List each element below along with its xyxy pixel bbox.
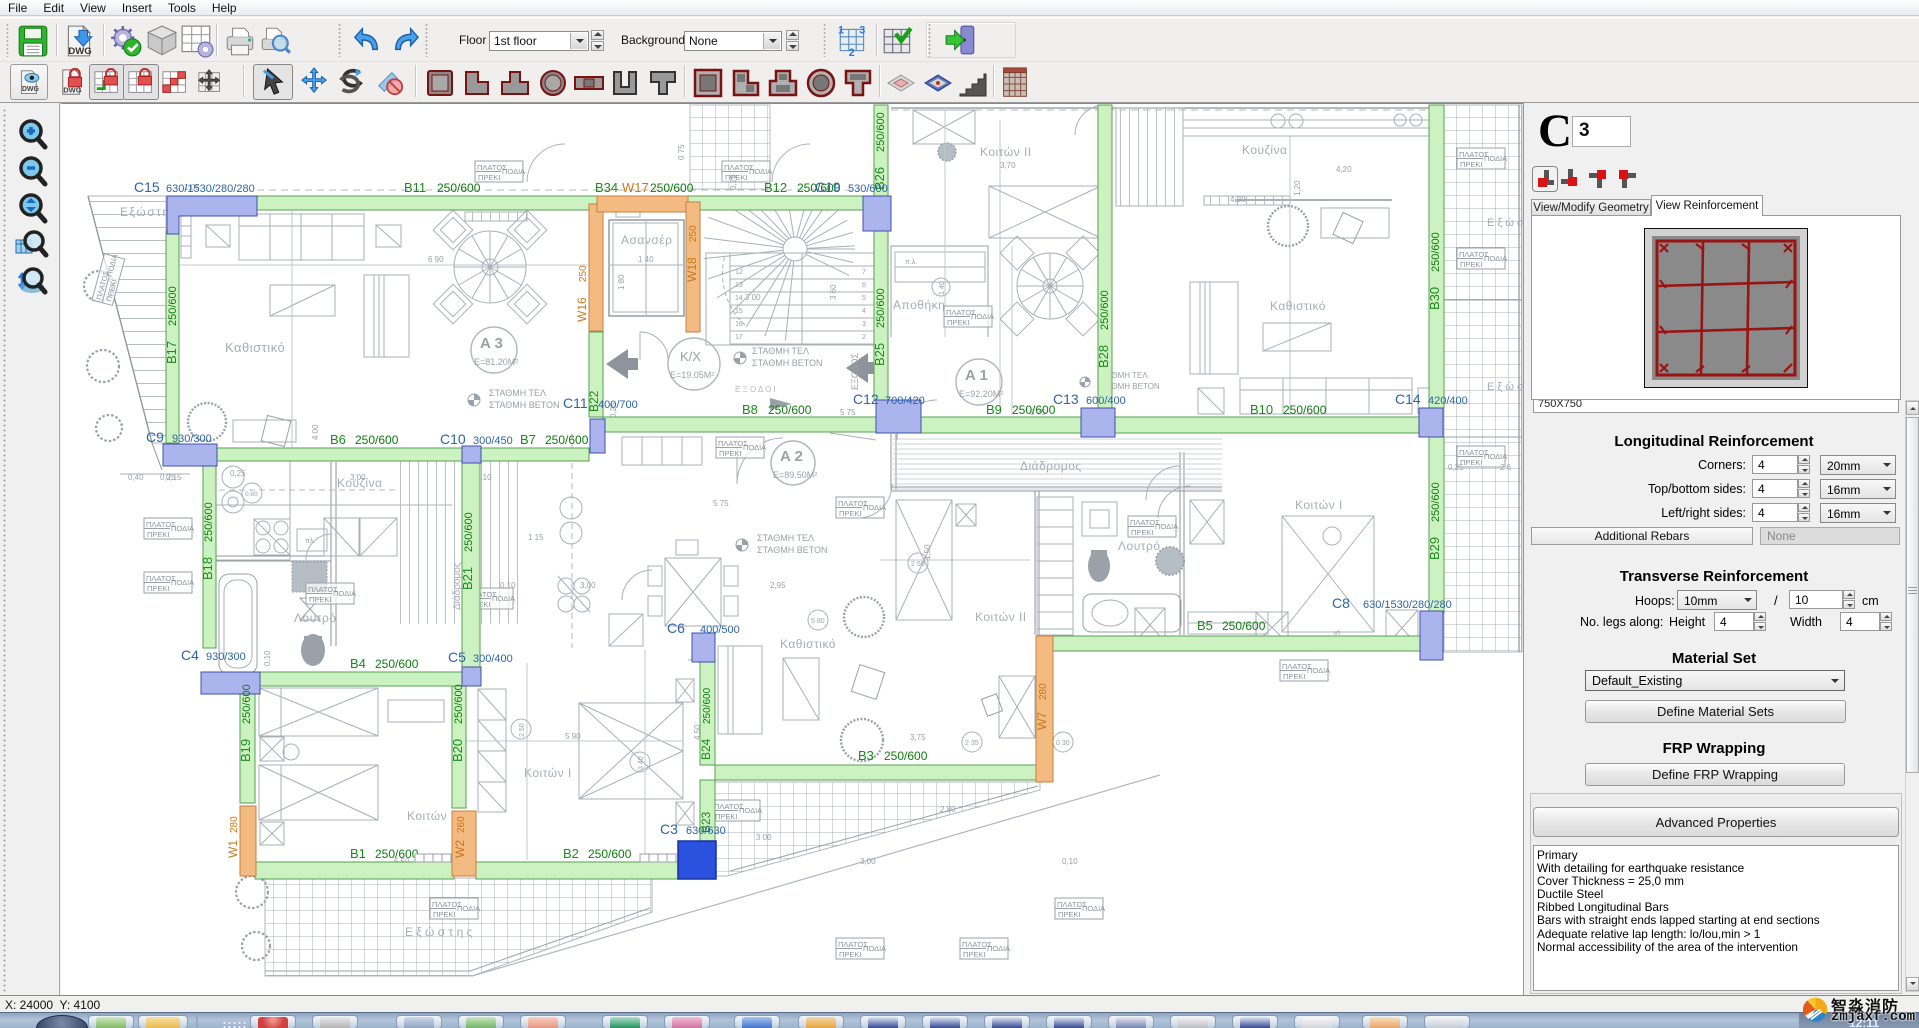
svg-text:C15: C15 xyxy=(134,179,160,195)
svg-text:ΠΡΕΚΙ: ΠΡΕΚΙ xyxy=(147,584,170,593)
svg-text:700/420: 700/420 xyxy=(885,395,925,407)
svg-text:C4: C4 xyxy=(181,647,199,663)
svg-text:B1: B1 xyxy=(350,846,366,861)
svg-text:Κοιτών ΙΙ: Κοιτών ΙΙ xyxy=(407,809,459,823)
svg-text:C9: C9 xyxy=(146,429,164,445)
svg-text:250: 250 xyxy=(578,265,589,282)
svg-text:1 40: 1 40 xyxy=(939,281,946,295)
svg-text:Καθιστικό: Καθιστικό xyxy=(225,340,285,355)
svg-text:3 40: 3 40 xyxy=(638,756,645,770)
svg-text:B2: B2 xyxy=(563,846,579,861)
svg-text:2,95: 2,95 xyxy=(770,581,786,590)
svg-text:B11: B11 xyxy=(404,180,426,195)
svg-text:630/1530/280/280: 630/1530/280/280 xyxy=(166,183,255,195)
svg-text:930/300: 930/300 xyxy=(206,651,246,663)
svg-text:3,75: 3,75 xyxy=(910,733,926,742)
svg-text:250/600: 250/600 xyxy=(884,749,928,763)
svg-text:ΠΟΔΙΑ: ΠΟΔΙΑ xyxy=(492,594,515,603)
svg-text:ΠΡΕΚΙ: ΠΡΕΚΙ xyxy=(478,173,501,182)
svg-text:0,10: 0,10 xyxy=(500,581,516,590)
svg-text:400/500: 400/500 xyxy=(700,624,740,636)
svg-text:B29: B29 xyxy=(1427,537,1442,560)
svg-text:ΠΟΔΙΑ: ΠΟΔΙΑ xyxy=(971,312,994,321)
svg-text:250/600: 250/600 xyxy=(241,684,253,724)
svg-text:C19: C19 xyxy=(815,179,841,195)
svg-text:1,50: 1,50 xyxy=(923,544,932,560)
svg-text:DWG: DWG xyxy=(68,46,91,57)
svg-text:B17: B17 xyxy=(164,341,179,364)
svg-text:300/450: 300/450 xyxy=(473,435,513,447)
svg-text:B20: B20 xyxy=(450,739,465,762)
svg-text:B18: B18 xyxy=(200,557,215,580)
svg-text:ΠΟΔΙΑ: ΠΟΔΙΑ xyxy=(1082,904,1105,913)
svg-text:0.80: 0.80 xyxy=(245,491,258,498)
svg-text:B12: B12 xyxy=(764,180,787,195)
svg-text:ΠΡΕΚΙ: ΠΡΕΚΙ xyxy=(719,449,742,458)
svg-text:250/600: 250/600 xyxy=(768,403,812,417)
svg-text:B24: B24 xyxy=(699,738,713,760)
svg-text:250/600: 250/600 xyxy=(167,286,179,326)
svg-text:5: 5 xyxy=(862,295,866,302)
svg-text:1 15: 1 15 xyxy=(528,533,544,542)
svg-text:6: 6 xyxy=(862,282,866,289)
svg-text:C5: C5 xyxy=(448,649,466,665)
svg-text:Ε ξ ώ σ τ η ς: Ε ξ ώ σ τ η ς xyxy=(405,925,473,939)
svg-text:B9: B9 xyxy=(986,402,1002,417)
svg-text:ΠΟΔΙΑ: ΠΟΔΙΑ xyxy=(502,167,525,176)
svg-text:3 00: 3 00 xyxy=(756,833,772,842)
svg-text:250/600: 250/600 xyxy=(650,181,694,195)
svg-text:B19: B19 xyxy=(238,739,253,762)
svg-text:250/600: 250/600 xyxy=(1430,232,1442,272)
svg-text:250/600: 250/600 xyxy=(375,657,419,671)
svg-text:Ασανσέρ: Ασανσέρ xyxy=(621,233,672,247)
svg-text:ΠΟΔΙΑ: ΠΟΔΙΑ xyxy=(987,944,1010,953)
svg-text:ΠΟΔΙΑ: ΠΟΔΙΑ xyxy=(743,443,766,452)
svg-text:A 2: A 2 xyxy=(780,448,803,465)
svg-text:ΠΟΔΙΑ: ΠΟΔΙΑ xyxy=(1484,154,1507,163)
svg-text:0,10: 0,10 xyxy=(1062,857,1078,866)
svg-text:1 40: 1 40 xyxy=(638,255,654,264)
svg-text:0,25: 0,25 xyxy=(729,174,738,190)
svg-text:ΣΤΑΘΜΗ ΒΕΤΟΝ: ΣΤΑΘΜΗ ΒΕΤΟΝ xyxy=(489,400,560,410)
svg-text:0,25: 0,25 xyxy=(230,469,246,478)
svg-text:250/600: 250/600 xyxy=(355,433,399,447)
svg-text:600/400: 600/400 xyxy=(1086,395,1126,407)
svg-text:3 00: 3 00 xyxy=(745,293,761,302)
svg-text:Ε Ξ Ο Δ Ο Ι: Ε Ξ Ο Δ Ο Ι xyxy=(735,385,776,394)
svg-text:ΠΟΔΙΑ: ΠΟΔΙΑ xyxy=(749,167,772,176)
svg-text:B8: B8 xyxy=(742,402,758,417)
svg-text:260: 260 xyxy=(456,816,467,833)
svg-text:17: 17 xyxy=(735,334,743,341)
svg-text:ΠΡΕΚΙ: ΠΡΕΚΙ xyxy=(963,950,986,959)
svg-text:6 90: 6 90 xyxy=(428,255,444,264)
svg-text:W16: W16 xyxy=(575,297,589,322)
svg-text:E=92.20M²: E=92.20M² xyxy=(959,389,1003,399)
svg-text:C12: C12 xyxy=(853,391,879,407)
svg-text:B4: B4 xyxy=(350,656,366,671)
svg-text:420/400: 420/400 xyxy=(1428,395,1468,407)
svg-text:A 3: A 3 xyxy=(480,335,503,352)
svg-text:3 60: 3 60 xyxy=(829,284,838,300)
svg-text:5 80: 5 80 xyxy=(811,618,825,625)
svg-text:B10: B10 xyxy=(1250,402,1273,417)
svg-text:5 75: 5 75 xyxy=(713,499,729,508)
svg-text:2 50: 2 50 xyxy=(519,723,526,737)
svg-text:W17: W17 xyxy=(622,180,649,195)
svg-text:250/600: 250/600 xyxy=(1099,290,1111,330)
svg-text:B28: B28 xyxy=(1096,345,1111,368)
svg-text:3,00: 3,00 xyxy=(350,473,366,482)
svg-text:3,70: 3,70 xyxy=(1000,161,1016,170)
svg-text:250/600: 250/600 xyxy=(1283,403,1327,417)
svg-text:16: 16 xyxy=(735,321,743,328)
svg-text:250/600: 250/600 xyxy=(875,112,887,152)
svg-text:2 50: 2 50 xyxy=(911,561,925,568)
svg-text:250/600: 250/600 xyxy=(1012,403,1056,417)
svg-text:15: 15 xyxy=(735,308,743,315)
svg-text:ΠΡΕΚΙ: ΠΡΕΚΙ xyxy=(1131,528,1154,537)
svg-text:π.λ.: π.λ. xyxy=(905,259,917,266)
svg-text:W2: W2 xyxy=(453,840,467,858)
svg-text:ΠΟΔΙΑ: ΠΟΔΙΑ xyxy=(1484,254,1507,263)
svg-text:ΠΡΕΚΙ: ΠΡΕΚΙ xyxy=(839,950,862,959)
svg-text:ΠΟΔΙΑ: ΠΟΔΙΑ xyxy=(1484,452,1507,461)
svg-text:Αποθήκη: Αποθήκη xyxy=(893,298,945,312)
svg-text:Λουτρό: Λουτρό xyxy=(1118,539,1161,553)
svg-text:C14: C14 xyxy=(1395,391,1421,407)
svg-text:ΠΡΕΚΙ: ΠΡΕΚΙ xyxy=(839,509,862,518)
svg-text:B3: B3 xyxy=(858,748,874,763)
svg-text:A 1: A 1 xyxy=(965,367,988,384)
svg-text:14: 14 xyxy=(735,295,743,302)
svg-text:B7: B7 xyxy=(520,432,536,447)
svg-text:2,80: 2,80 xyxy=(940,805,956,814)
svg-text:ΣΤΑΘΜΗ ΒΕΤΟΝ: ΣΤΑΘΜΗ ΒΕΤΟΝ xyxy=(752,358,823,368)
svg-text:ΠΡΕΚΙ: ΠΡΕΚΙ xyxy=(147,530,170,539)
svg-text:Λουτρό: Λουτρό xyxy=(294,611,337,625)
svg-text:7: 7 xyxy=(862,269,866,276)
svg-text:ΣΤΑΘΜΗ ΤΕΛ: ΣΤΑΘΜΗ ΤΕΛ xyxy=(489,388,546,398)
svg-text:250/600: 250/600 xyxy=(453,684,465,724)
svg-text:C8: C8 xyxy=(1332,595,1350,611)
svg-text:280: 280 xyxy=(229,816,240,833)
svg-text:250/600: 250/600 xyxy=(463,512,475,552)
svg-text:ΣΤΑΘΜΗ ΤΕΛ: ΣΤΑΘΜΗ ΤΕΛ xyxy=(757,533,814,543)
svg-text:250/600: 250/600 xyxy=(1222,619,1266,633)
svg-text:ΠΟΔΙΑ: ΠΟΔΙΑ xyxy=(739,806,762,815)
svg-text:250/600: 250/600 xyxy=(437,181,481,195)
svg-text:ΠΡΕΚΙ: ΠΡΕΚΙ xyxy=(1058,910,1081,919)
svg-text:Καθιστικό: Καθιστικό xyxy=(1270,299,1326,313)
svg-text:400/700: 400/700 xyxy=(598,399,638,411)
svg-text:3,00: 3,00 xyxy=(860,857,876,866)
svg-text:C13: C13 xyxy=(1053,391,1079,407)
svg-text:C11: C11 xyxy=(563,395,588,411)
svg-text:E=19.05M²: E=19.05M² xyxy=(670,370,714,380)
svg-text:ΠΡΕΚΙ: ΠΡΕΚΙ xyxy=(1460,160,1483,169)
svg-text:Κοιτών Ι: Κοιτών Ι xyxy=(524,766,572,780)
svg-text:4 00: 4 00 xyxy=(311,424,320,440)
svg-text:Ε ξ ώ σ τ: Ε ξ ώ σ τ xyxy=(1487,381,1523,393)
svg-text:250/600: 250/600 xyxy=(1430,482,1442,522)
svg-text:250: 250 xyxy=(688,225,699,242)
svg-text:K/X: K/X xyxy=(680,349,701,364)
svg-text:ΠΡΕΚΙ: ΠΡΕΚΙ xyxy=(1283,672,1306,681)
svg-text:Κοιτών Ι: Κοιτών Ι xyxy=(1295,498,1343,512)
svg-text:2 35: 2 35 xyxy=(965,740,979,747)
svg-text:2: 2 xyxy=(862,334,866,341)
svg-text:630/630: 630/630 xyxy=(686,825,726,837)
svg-text:ΣΤΑΘΜΗ ΒΕΤΟΝ: ΣΤΑΘΜΗ ΒΕΤΟΝ xyxy=(757,545,828,555)
svg-text:1: 1 xyxy=(838,25,844,37)
svg-text:ΠΡΕΚΙ: ΠΡΕΚΙ xyxy=(947,318,970,327)
svg-text:E=89.50M²: E=89.50M² xyxy=(773,470,817,480)
svg-text:250/600: 250/600 xyxy=(203,502,215,542)
svg-text:13: 13 xyxy=(735,282,743,289)
svg-text:ΠΟΔΙΑ: ΠΟΔΙΑ xyxy=(457,904,480,913)
svg-text:B21: B21 xyxy=(460,567,475,590)
svg-text:0,10: 0,10 xyxy=(263,650,272,666)
svg-text:930/300: 930/300 xyxy=(172,433,212,445)
svg-text:ΠΟΔΙΑ: ΠΟΔΙΑ xyxy=(171,578,194,587)
svg-text:B26: B26 xyxy=(872,167,887,190)
svg-text:3: 3 xyxy=(862,321,866,328)
svg-text:ΕΞΟΔΟΣ: ΕΞΟΔΟΣ xyxy=(850,353,860,390)
svg-text:3,00: 3,00 xyxy=(580,581,596,590)
svg-text:4: 4 xyxy=(862,308,866,315)
svg-text:0 75: 0 75 xyxy=(677,144,686,160)
svg-text:ΠΡΕΚΙ: ΠΡΕΚΙ xyxy=(309,595,332,604)
svg-text:12: 12 xyxy=(735,269,743,276)
svg-text:W18: W18 xyxy=(685,257,699,282)
svg-text:4,20: 4,20 xyxy=(1230,195,1246,204)
svg-text:DWG: DWG xyxy=(22,86,40,93)
svg-text:Κοιτών ΙΙ: Κοιτών ΙΙ xyxy=(975,610,1027,624)
svg-text:ΠΡΕΚΙ: ΠΡΕΚΙ xyxy=(1460,260,1483,269)
svg-text:ΠΟΔΙΑ: ΠΟΔΙΑ xyxy=(1307,666,1330,675)
svg-text:ΠΡΕΚΙ: ΠΡΕΚΙ xyxy=(433,910,456,919)
svg-text:250/600: 250/600 xyxy=(375,847,419,861)
svg-text:B30: B30 xyxy=(1427,287,1442,310)
svg-text:B34: B34 xyxy=(595,180,618,195)
svg-text:ΠΡΕΚΙ: ΠΡΕΚΙ xyxy=(715,812,738,821)
svg-text:250/600: 250/600 xyxy=(545,433,589,447)
svg-text:1 80: 1 80 xyxy=(617,274,626,290)
svg-text:C3: C3 xyxy=(660,821,678,837)
svg-text:2: 2 xyxy=(849,47,855,57)
svg-text:300/400: 300/400 xyxy=(473,653,513,665)
svg-text:0 30: 0 30 xyxy=(1056,740,1070,747)
svg-text:2 6: 2 6 xyxy=(1500,463,1512,472)
svg-text:ΠΟΔΙΑ: ΠΟΔΙΑ xyxy=(171,524,194,533)
svg-text:ΠΟΔΙΑ: ΠΟΔΙΑ xyxy=(1155,522,1178,531)
svg-text:1,20: 1,20 xyxy=(1293,180,1302,196)
svg-text:Κοιτών ΙΙ: Κοιτών ΙΙ xyxy=(980,145,1032,159)
svg-text:B6: B6 xyxy=(330,432,346,447)
svg-text:5 90: 5 90 xyxy=(565,732,581,741)
svg-text:Καθιστικό: Καθιστικό xyxy=(780,637,836,651)
svg-text:630/1530/280/280: 630/1530/280/280 xyxy=(1363,599,1452,611)
svg-text:0,25: 0,25 xyxy=(1448,463,1464,472)
svg-text:250/600: 250/600 xyxy=(588,847,632,861)
svg-text:Κουζίνα: Κουζίνα xyxy=(1242,143,1288,157)
svg-text:B5: B5 xyxy=(1197,618,1213,633)
svg-text:250/600: 250/600 xyxy=(702,687,713,724)
svg-text:4,20: 4,20 xyxy=(1336,165,1352,174)
svg-text:E=81.20M²: E=81.20M² xyxy=(474,357,518,367)
svg-text:W7: W7 xyxy=(1035,712,1049,730)
svg-text:C6: C6 xyxy=(667,620,685,636)
svg-text:C10: C10 xyxy=(440,431,466,447)
svg-text:Ε ξ ώ σ τ: Ε ξ ώ σ τ xyxy=(1487,217,1523,229)
svg-text:B25: B25 xyxy=(872,343,887,366)
svg-text:280: 280 xyxy=(1038,683,1049,700)
svg-text:W1: W1 xyxy=(226,840,240,858)
svg-text:ΣΤΑΘΜΗ ΤΕΛ: ΣΤΑΘΜΗ ΤΕΛ xyxy=(752,346,809,356)
svg-text:3: 3 xyxy=(859,25,865,37)
svg-text:Διάδρομος: Διάδρομος xyxy=(1020,459,1082,473)
svg-text:5 75: 5 75 xyxy=(840,408,856,417)
svg-text:ΠΟΔΙΑ: ΠΟΔΙΑ xyxy=(863,944,886,953)
svg-text:250/600: 250/600 xyxy=(875,288,887,328)
svg-text:ΠΟΔΙΑ: ΠΟΔΙΑ xyxy=(333,589,356,598)
